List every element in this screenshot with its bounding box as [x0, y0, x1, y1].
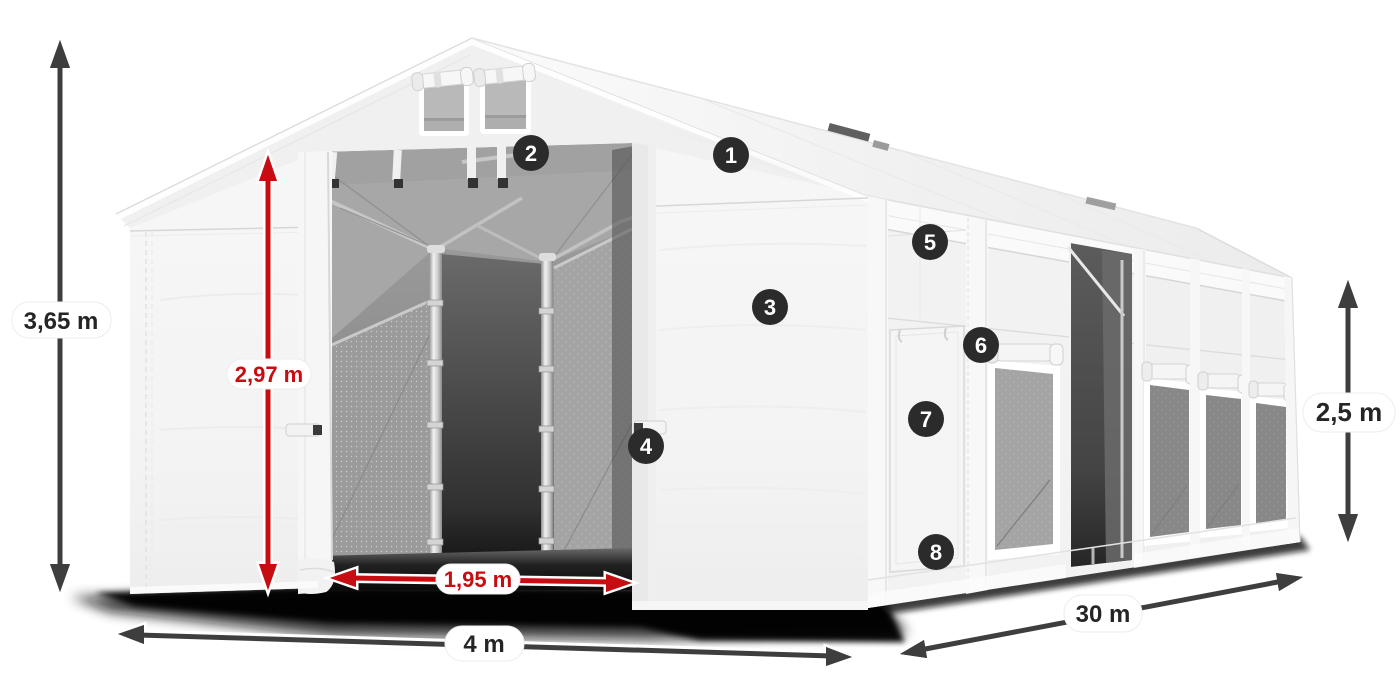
svg-text:1: 1	[725, 143, 737, 168]
svg-text:7: 7	[920, 407, 932, 432]
svg-text:2,97 m: 2,97 m	[235, 362, 304, 387]
svg-text:1,95 m: 1,95 m	[444, 567, 513, 592]
svg-text:2,5 m: 2,5 m	[1316, 397, 1383, 427]
svg-text:4: 4	[640, 434, 653, 459]
svg-text:3: 3	[764, 295, 776, 320]
svg-text:5: 5	[924, 230, 936, 255]
svg-text:3,65 m: 3,65 m	[24, 308, 99, 335]
svg-text:6: 6	[975, 333, 987, 358]
svg-text:2: 2	[525, 141, 537, 166]
svg-text:30 m: 30 m	[1076, 601, 1131, 628]
svg-text:4 m: 4 m	[463, 631, 504, 658]
svg-text:8: 8	[930, 540, 942, 565]
